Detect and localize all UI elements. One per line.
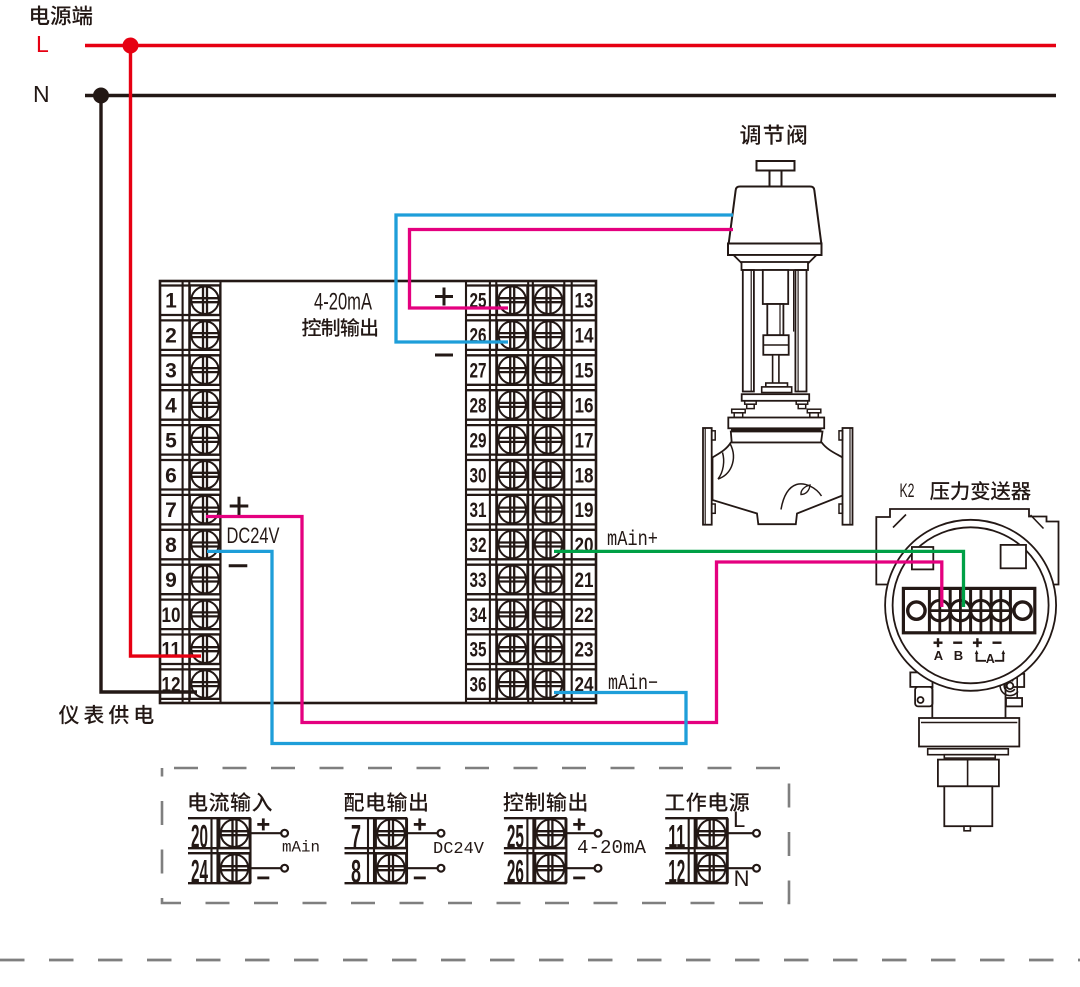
- svg-text:2: 2: [165, 325, 177, 348]
- svg-text:15: 15: [575, 360, 594, 383]
- svg-text:27: 27: [470, 360, 487, 383]
- svg-text:5: 5: [165, 429, 177, 452]
- svg-text:31: 31: [470, 499, 487, 522]
- svg-text:20: 20: [575, 534, 594, 557]
- svg-text:1: 1: [165, 290, 177, 313]
- svg-text:9: 9: [165, 569, 177, 592]
- svg-text:A: A: [934, 648, 944, 663]
- svg-text:20: 20: [191, 819, 208, 855]
- svg-text:29: 29: [470, 429, 487, 452]
- svg-text:4-20mA: 4-20mA: [314, 289, 372, 316]
- svg-text:B: B: [954, 648, 963, 663]
- svg-text:17: 17: [575, 429, 594, 452]
- svg-text:25: 25: [507, 819, 524, 855]
- svg-text:26: 26: [470, 325, 487, 348]
- svg-text:K2: K2: [900, 481, 915, 502]
- svg-text:N: N: [33, 81, 50, 107]
- svg-text:3: 3: [165, 360, 177, 383]
- svg-text:A: A: [986, 652, 995, 666]
- svg-text:22: 22: [575, 604, 594, 627]
- svg-text:32: 32: [470, 534, 487, 557]
- svg-text:7: 7: [351, 819, 361, 855]
- svg-text:8: 8: [351, 854, 361, 890]
- svg-text:34: 34: [470, 604, 487, 627]
- svg-text:24: 24: [191, 854, 208, 890]
- svg-text:12: 12: [668, 854, 685, 890]
- svg-text:11: 11: [668, 819, 685, 855]
- svg-text:36: 36: [470, 674, 487, 697]
- svg-text:28: 28: [470, 394, 487, 417]
- svg-text:30: 30: [470, 464, 487, 487]
- svg-text:8: 8: [165, 534, 177, 557]
- svg-text:L: L: [733, 807, 745, 832]
- svg-text:23: 23: [575, 639, 594, 662]
- svg-text:mAin+: mAin+: [607, 529, 658, 552]
- svg-text:DC24V: DC24V: [433, 840, 485, 859]
- svg-text:L: L: [36, 31, 49, 57]
- svg-text:11: 11: [162, 639, 181, 662]
- svg-text:33: 33: [470, 569, 487, 592]
- svg-text:16: 16: [575, 394, 594, 417]
- svg-text:18: 18: [575, 464, 594, 487]
- svg-text:14: 14: [575, 325, 594, 348]
- svg-text:26: 26: [507, 854, 524, 890]
- svg-text:DC24V: DC24V: [227, 523, 280, 548]
- svg-text:4-20mA: 4-20mA: [577, 837, 647, 859]
- svg-text:19: 19: [575, 499, 594, 522]
- svg-text:10: 10: [162, 604, 181, 627]
- svg-text:7: 7: [165, 499, 177, 522]
- svg-text:4: 4: [165, 394, 177, 417]
- svg-text:6: 6: [165, 464, 177, 487]
- svg-text:mAin: mAin: [282, 839, 320, 857]
- svg-text:21: 21: [575, 569, 594, 592]
- svg-text:N: N: [734, 866, 750, 891]
- svg-text:35: 35: [470, 639, 487, 662]
- svg-text:13: 13: [575, 290, 594, 313]
